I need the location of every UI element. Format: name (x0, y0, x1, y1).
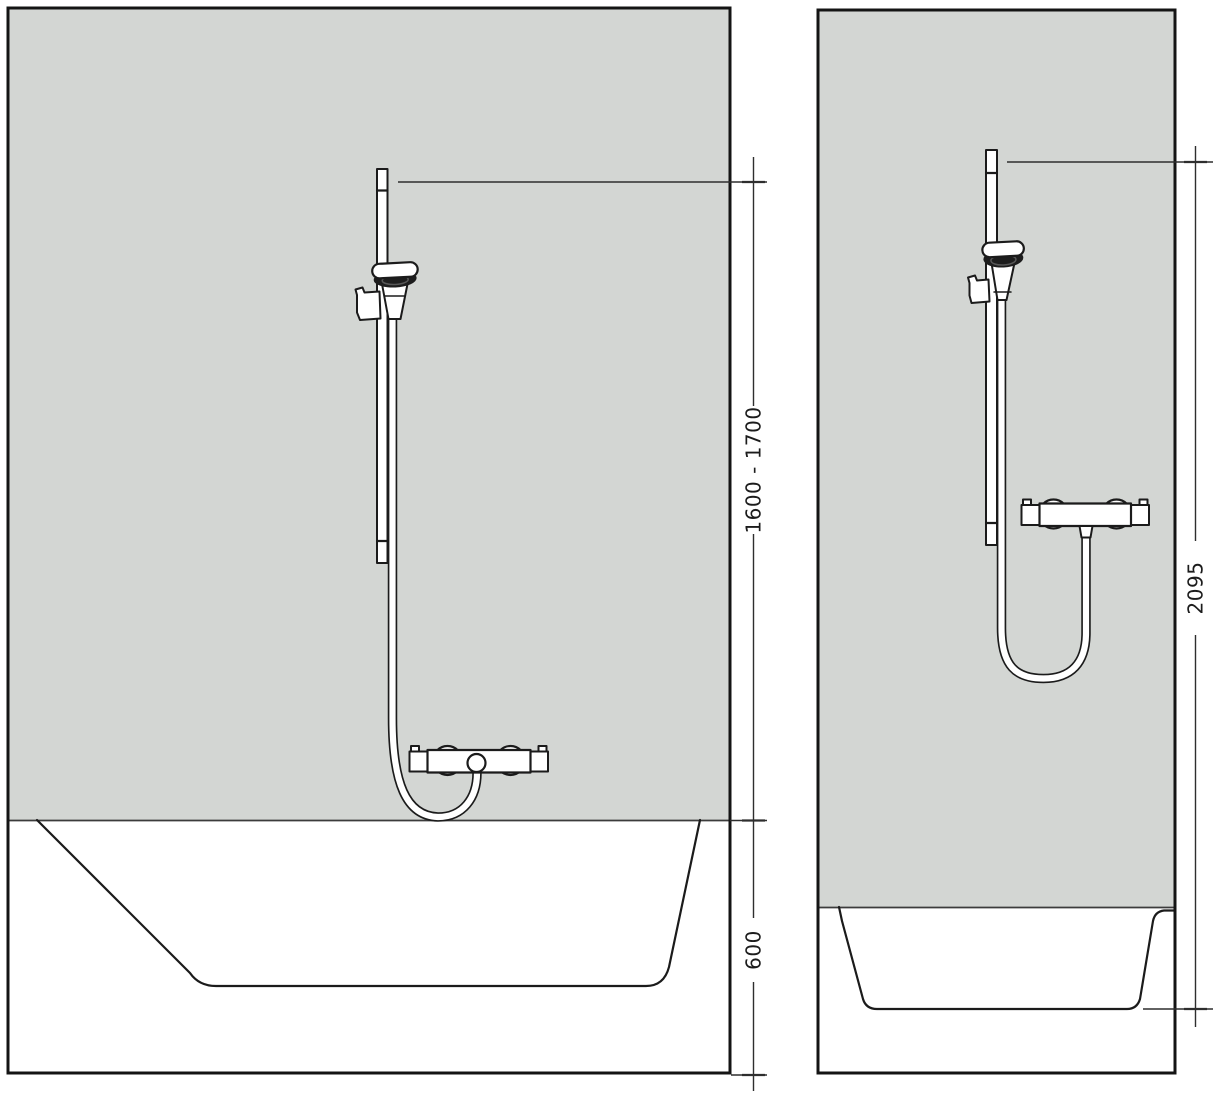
drawing-canvas: 1600 - 1700 600 (0, 0, 1220, 1095)
side-mixer-right-cap (1131, 505, 1149, 525)
front-view: 1600 - 1700 600 (8, 8, 767, 1091)
side-mixer-hose-connector (1080, 526, 1093, 538)
side-head-body (982, 241, 1024, 258)
side-slide-bar (986, 150, 997, 545)
side-slide-bar-rail (986, 150, 997, 545)
installation-drawing: 1600 - 1700 600 (0, 0, 1220, 1095)
side-mixer-left-cap (1022, 505, 1040, 525)
front-slide-bar-rail (377, 169, 388, 563)
front-bathtub (37, 820, 700, 986)
front-holder-bracket (356, 288, 381, 321)
side-dim-label-total-height: 2095 (1184, 562, 1208, 615)
side-holder-bracket (968, 276, 990, 304)
front-thermostat-mixer (410, 746, 549, 775)
side-mixer-body (1040, 504, 1132, 527)
front-dim-label-tub-height: 600 (742, 930, 766, 970)
front-slide-bar (377, 169, 388, 563)
front-head-body (372, 262, 418, 279)
front-mixer-right-cap (530, 752, 548, 772)
front-wall (10, 10, 729, 821)
front-mixer-left-cap (410, 752, 428, 772)
side-bathtub (839, 907, 1175, 1009)
front-mixer-hose-ring (468, 754, 486, 772)
front-dim-label-bar-range: 1600 - 1700 (742, 406, 766, 533)
side-view: 2095 (818, 10, 1213, 1073)
